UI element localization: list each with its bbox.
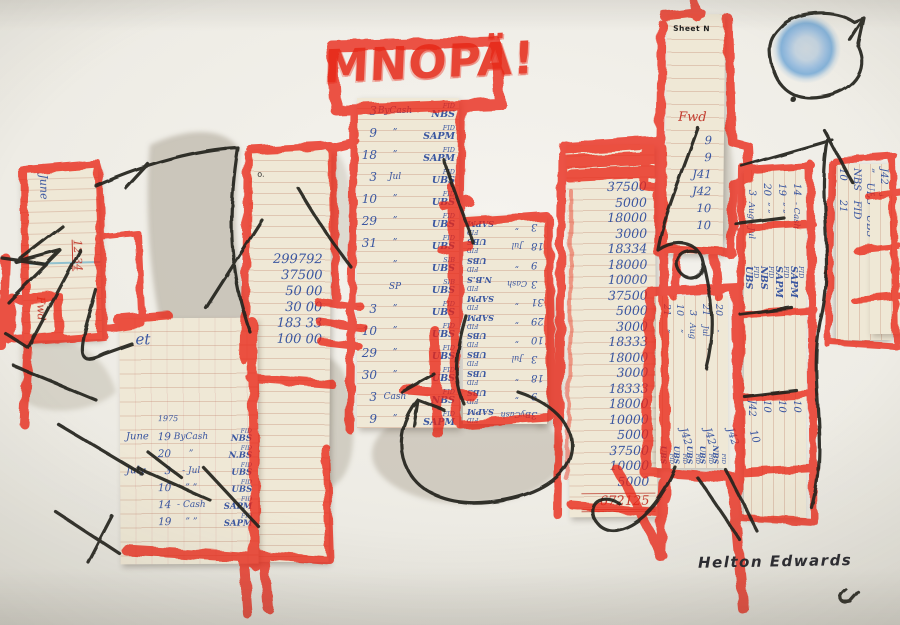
ledger-codes: FIDUBS — [744, 266, 760, 340]
ledger-org: UBS — [744, 266, 754, 289]
ledger-day: 9 — [531, 390, 547, 401]
ledger-codes: FIDN.BS — [229, 446, 257, 461]
ledger-label: Jul — [503, 241, 531, 250]
tower-value: 10 — [665, 200, 711, 217]
bottom-sheet-entries: June 19 ByCash FIDNBS 20 ” FIDN.BS July … — [126, 428, 257, 531]
amount-value: 18334 — [567, 241, 655, 257]
ledger-row: 3 ByCash FIDSAPM — [463, 405, 547, 424]
ledger-codes: FIDNBS — [231, 429, 256, 444]
printed-corner-mark: o. — [257, 170, 264, 179]
ledger-label: ” — [503, 316, 531, 325]
ledger-org: UBS — [432, 352, 455, 362]
ledger-row: 29 ” FIDSAPM — [463, 311, 547, 330]
ledger-org: NBS — [231, 435, 252, 444]
ledger-row: July 3 - Jul FIDUBS — [126, 462, 256, 480]
amount-value: 18000 — [569, 396, 657, 412]
ledger-day: 20 — [713, 296, 724, 316]
ledger-row: 10 ” FIDUBS — [357, 188, 459, 210]
wash-strip-shadow — [329, 150, 353, 262]
ledger-row: 3 ” FIDSAPM — [463, 217, 547, 236]
ledger-day: 20 — [156, 448, 171, 460]
inverted-entries: 3 ByCash FIDSAPM 9 ” FIDUBS 18 ” FIDUBS — [463, 216, 547, 424]
ledger-tag: FID — [467, 340, 478, 346]
ledger-day: 19 — [156, 516, 171, 528]
ink-sail-strokes — [96, 148, 250, 332]
amount-value: 5000 — [568, 303, 656, 319]
ledger-label: Cash — [377, 392, 413, 402]
ledger-org: UBS — [432, 308, 455, 318]
ledger-codes: FIDSAPM — [463, 220, 494, 234]
ledger-org: UBS — [231, 469, 252, 478]
amount-value: 18333 — [568, 380, 656, 396]
amount-column: 2997923750050 0030 00183 33100 00 — [248, 252, 331, 349]
amount-value: 183 33 — [248, 316, 330, 333]
ledger-row: 3 Cash FIDN.B.S — [463, 274, 547, 293]
ledger-day: 20 — [761, 170, 772, 196]
amount-value: 100 00 — [248, 332, 330, 349]
ledger-org: SAPM — [423, 418, 455, 428]
sheet-header-label: Sheet N — [673, 24, 710, 33]
ledger-codes: FIDN.B.S — [463, 276, 492, 290]
ledger-org: UBS — [467, 370, 487, 378]
ledger-label: Jul — [503, 354, 531, 363]
ledger-codes: FIDUBS — [432, 169, 459, 185]
watercolor-sun — [768, 10, 848, 94]
ledger-codes: FIDSAPM — [463, 408, 494, 422]
central-entries: 3 ByCash FIDNBS 9 ” FIDSAPM 18 ” FIDSAPM — [357, 98, 459, 428]
ledger-codes: FIDSAPM — [463, 314, 494, 328]
ledger-row: 18 ” FIDSAPM — [357, 144, 459, 166]
amount-value: 299792 — [249, 252, 331, 269]
ledger-amount: J42 — [746, 400, 757, 417]
ledger-codes: FIDUBS — [463, 238, 487, 252]
ledger-label: ” — [377, 304, 413, 314]
ledger-label: ” ” — [777, 196, 787, 266]
ledger-row: June 19 ByCash FIDNBS — [126, 428, 256, 446]
ledger-row: 18 Jul FIDUBS — [463, 236, 547, 255]
ledger-org: UBS — [432, 220, 455, 230]
ledger-row: 9 ” FIDUBS — [463, 255, 547, 274]
ledger-codes: FIDSAPM — [224, 497, 257, 512]
ledger-codes: FIDUBS — [463, 389, 487, 403]
ledger-day: 14 — [791, 170, 802, 196]
ledger-org: SAPM — [423, 132, 455, 142]
ledger-day: 30 — [357, 368, 377, 382]
ledger-day: 29 — [357, 346, 377, 360]
ledger-row: 3 Jul FIDUBS — [357, 166, 459, 188]
ink-sun-dot — [790, 96, 796, 102]
ledger-row: 19 ” ” FIDSAPM 10 — [774, 170, 789, 518]
printed-blue-rule — [22, 261, 100, 265]
ledger-label: ByCash — [171, 431, 211, 441]
ledger-codes: FIDUBS — [432, 213, 459, 229]
ledger-label: Jul — [701, 316, 710, 346]
ledger-strip-central: 3 ByCash FIDNBS 9 ” FIDSAPM 18 ” FIDSAPM — [357, 98, 459, 428]
total-amount: 672125 — [581, 493, 655, 513]
ledger-label: ” — [503, 373, 531, 382]
right-ledger-entries: 14 - Cash FIDSAPM 10 19 ” ” FIDSAPM 10 2… — [744, 170, 806, 518]
ledger-org: NBS — [431, 110, 455, 120]
ledger-row: 3 ByCash FIDNBS — [357, 100, 459, 122]
ledger-row: 9 ” FIDSAPM — [357, 122, 459, 144]
tower-value: 9 — [666, 149, 712, 166]
amount-value: 37500 — [568, 287, 656, 303]
ledger-day: 3 — [531, 409, 547, 420]
ledger-label: ” — [503, 260, 531, 269]
ledger-codes: FIDUBS — [463, 370, 487, 384]
ledger-label: ” — [377, 326, 413, 336]
ledger-codes: FIDUBS — [463, 332, 487, 346]
amount-value: 10000 — [569, 458, 657, 474]
ledger-strip-numbers: o. 2997923750050 0030 00183 33100 00 — [247, 150, 332, 563]
ledger-row: 10 ” FIDUBS — [463, 330, 547, 349]
ledger-label: - Cash — [171, 499, 211, 509]
ledger-row: 14 - Cash FIDSAPM — [126, 496, 256, 514]
amount-value: 3000 — [568, 318, 656, 334]
left-strip-month: June — [37, 174, 51, 199]
ledger-label: Aug — [688, 316, 697, 346]
left-strip-foot-note: Fwd — [34, 296, 48, 320]
ledger-codes: FIDSAPM — [463, 295, 494, 309]
ledger-label: Aug - Jul — [747, 196, 757, 266]
ledger-amount: 10 — [776, 400, 787, 413]
wash-left-bottom — [20, 341, 116, 411]
ledger-day: 14 — [156, 499, 171, 511]
amount-value: 10000 — [569, 411, 657, 427]
ledger-codes: FIDUBS — [231, 480, 256, 495]
ledger-day: 10 — [531, 334, 547, 345]
ledger-codes: FIDUBS — [231, 463, 256, 478]
ledger-codes: SIBUBS — [432, 279, 459, 295]
ledger-row: 3 Cash FIDNBS — [357, 386, 459, 408]
ledger-label: ” — [377, 414, 413, 424]
ledger-codes: FIDSAPM — [423, 147, 459, 163]
ledger-codes: FIDSAPM — [774, 266, 790, 340]
ledger-strip-left: June 12 34 Fwd — [20, 167, 102, 341]
ledger-label: ” — [503, 297, 531, 306]
ledger-day: 3 — [357, 390, 377, 404]
ledger-tag: FID — [467, 359, 478, 365]
ledger-codes: SIBUBS — [432, 257, 459, 273]
ledger-day: 19 — [156, 431, 171, 443]
ledger-label: ” — [377, 194, 413, 204]
amount-value: 50 00 — [248, 284, 330, 301]
ledger-codes: FIDSAPM — [224, 514, 257, 529]
ledger-org: UBS — [432, 176, 455, 186]
ledger-day: 21 — [700, 296, 711, 316]
ledger-day: 18 — [531, 372, 547, 383]
amount-value: 30 00 — [248, 300, 330, 317]
amount-value: 18000 — [567, 210, 655, 226]
ledger-org: UBS — [467, 389, 487, 397]
ledger-day: 3 — [687, 296, 698, 316]
ledger-strip-edge — [870, 196, 900, 334]
ledger-org: SAPM — [467, 295, 494, 303]
amount-value: 37500 — [249, 268, 331, 285]
ledger-day: 10 — [156, 482, 171, 494]
ledger-label: ” ” — [171, 516, 211, 526]
ledger-label: ” — [377, 128, 413, 138]
ledger-label: ” — [377, 238, 413, 248]
ledger-label: ” — [675, 316, 684, 346]
tower-red-note: Fwd — [678, 110, 707, 125]
artist-signature: Helton Edwards — [698, 550, 898, 571]
ledger-line: NBS FID — [850, 168, 864, 340]
ledger-codes: FIDUBS — [432, 345, 459, 361]
ledger-day: 3 — [746, 170, 757, 196]
ledger-codes: FIDNBS — [431, 389, 459, 405]
crayon-box-small — [98, 234, 142, 330]
ledger-row: 10 ” FIDUBS — [357, 320, 459, 342]
ledger-org: UBS — [467, 351, 487, 359]
ledger-label: ” — [377, 260, 413, 270]
ledger-org: SAPM — [467, 408, 494, 416]
ledger-codes: FIDSAPM — [789, 266, 805, 340]
ledger-day: 10 — [357, 324, 377, 338]
amount-value: 5000 — [569, 473, 657, 489]
ledger-label: ByCash — [377, 106, 413, 116]
ledger-label: Jul — [377, 172, 413, 182]
ledger-codes: FIDUBS — [432, 235, 459, 251]
ledger-row: 14 - Cash FIDSAPM 10 — [789, 170, 804, 518]
ledger-day: 3 — [357, 170, 377, 184]
ledger-day: 31 — [531, 296, 547, 307]
ledger-label: ” — [503, 335, 531, 344]
ledger-org: UBS — [467, 332, 487, 340]
ledger-label: ” — [377, 348, 413, 358]
ledger-day: 18 — [357, 148, 377, 162]
ledger-codes: FIDUBS — [432, 301, 459, 317]
ledger-month: June — [126, 431, 156, 442]
ledger-row: SP SIBUBS — [357, 276, 459, 298]
tower-values: 99J41J421010 — [665, 132, 712, 234]
ledger-label: Cash — [503, 279, 531, 288]
ledger-codes: FIDUBS — [463, 351, 487, 365]
ledger-strip-inverted: 3 ByCash FIDSAPM 9 ” FIDUBS 18 ” FIDUBS — [463, 216, 547, 424]
ledger-day: 19 — [776, 170, 787, 196]
ledger-day: 3 — [357, 104, 377, 118]
artwork-canvas: June 12 34 Fwd o. 2997923750050 0030 001… — [0, 0, 900, 625]
ledger-org: UBS — [432, 374, 455, 384]
ledger-day: 3 — [531, 353, 547, 364]
ledger-row: 19 ” ” FIDSAPM — [126, 513, 256, 531]
tower-value: J41 — [665, 166, 711, 183]
left-strip-amount: 12 34 — [71, 239, 85, 271]
ledger-row: 10 ” ” FIDUBS — [126, 479, 256, 497]
ledger-day: 21 — [661, 296, 672, 316]
ledger-day: 3 — [156, 465, 171, 477]
ledger-label: ” — [503, 222, 531, 231]
ledger-row: 9 ” FIDUBS — [463, 386, 547, 405]
ledger-row: 3 ” FIDUBS — [357, 298, 459, 320]
ledger-line: 10 21 — [836, 168, 850, 340]
ledger-label: ” — [377, 150, 413, 160]
ledger-org: UBS — [467, 257, 487, 265]
sheet-note: et — [135, 330, 150, 348]
ledger-codes: FIDNBS — [759, 266, 775, 340]
ledger-org: NBS — [431, 396, 455, 406]
ledger-label: ” — [377, 370, 413, 380]
ledger-row: 9 ” FIDSAPM — [357, 408, 459, 430]
tower-value: 9 — [666, 132, 712, 149]
ledger-row: 30 ” FIDUBS — [357, 364, 459, 386]
ledger-row: ” SIBUBS — [357, 254, 459, 276]
ledger-org: SAPM — [224, 520, 253, 529]
ledger-row: 18 ” FIDUBS — [463, 368, 547, 387]
amount-value: 3000 — [567, 225, 655, 241]
ledger-day: 9 — [357, 126, 377, 140]
amount-value: 5000 — [567, 194, 655, 210]
amount-value: 18333 — [568, 334, 656, 350]
ledger-org: UBS — [467, 238, 487, 246]
ledger-row: 29 ” FIDUBS — [357, 342, 459, 364]
sheet-year: 1975 — [158, 414, 178, 423]
ledger-day: 10 — [357, 192, 377, 206]
ledger-label: ” — [662, 316, 671, 346]
ledger-row: 20 ” FIDN.BS — [126, 445, 256, 463]
title-scrawl: MNOPÄ! — [323, 32, 515, 93]
ledger-row: 29 ” FIDUBS — [357, 210, 459, 232]
ledger-codes: FIDNBS — [431, 103, 459, 119]
ledger-org: SAPM — [224, 503, 253, 512]
ledger-label: - Cash — [792, 196, 802, 266]
ledger-row: 20 ” ” FIDNBS 10 — [759, 170, 774, 518]
amount-value: 3000 — [568, 365, 656, 381]
ledger-org: UBS — [432, 264, 455, 274]
ledger-org: UBS — [432, 242, 455, 252]
ledger-day: 9 — [531, 259, 547, 270]
ledger-row: 31 ” FIDUBS — [357, 232, 459, 254]
ledger-label: - Jul — [171, 465, 211, 475]
ink-stroke-left-low — [14, 366, 96, 400]
ledger-day: 9 — [357, 412, 377, 426]
ledger-sheet-bottom: et 1975 June 19 ByCash FIDNBS 20 ” FIDN.… — [119, 318, 258, 565]
ledger-strip-tower: Sheet N Fwd 99J41J421010 — [665, 14, 726, 255]
ledger-day: 3 — [531, 278, 547, 289]
ledger-codes: FIDSAPM — [423, 125, 459, 141]
ledger-strip-tall-numbers: 3750050001800030001833418000100003750050… — [566, 145, 657, 518]
amount-value: 18000 — [567, 256, 655, 272]
ledger-month: July — [126, 465, 156, 476]
ledger-day: 29 — [357, 214, 377, 228]
ledger-day: 3 — [531, 221, 547, 232]
ledger-label: ” — [171, 448, 211, 458]
ledger-label: SP — [377, 282, 413, 292]
ledger-label: ByCash — [503, 410, 531, 419]
ledger-strip-right-sideways: 14 - Cash FIDSAPM 10 19 ” ” FIDSAPM 10 2… — [744, 170, 806, 518]
ledger-amount: 10 — [791, 400, 802, 413]
ledger-label: ” ” — [171, 482, 211, 492]
ledger-org: UBS — [432, 198, 455, 208]
ledger-org: SAPM — [423, 154, 455, 164]
ink-ticks-bottom-corner — [56, 512, 120, 562]
ledger-day: 31 — [357, 236, 377, 250]
amount-value: 37500 — [567, 179, 655, 195]
ledger-org: UBS — [231, 486, 252, 495]
ledger-org: SAPM — [467, 314, 494, 322]
ledger-org: N.B.S — [467, 276, 492, 284]
ledger-tag: FID — [467, 246, 478, 252]
ledger-day: 3 — [357, 302, 377, 316]
ledger-row: 3 Aug - Jul FIDUBS J42 — [744, 170, 759, 518]
ledger-row: 3 Jul FIDUBS — [463, 349, 547, 368]
ledger-label: ” — [377, 216, 413, 226]
ledger-codes: FIDUBS — [432, 191, 459, 207]
ledger-codes: FIDUBS — [463, 257, 487, 271]
ledger-amount: 10 — [761, 400, 772, 413]
ledger-label: ” — [503, 391, 531, 400]
ledger-row: 31 ” FIDSAPM — [463, 292, 547, 311]
amount-value: 18000 — [568, 349, 656, 365]
ledger-codes: FIDUBS — [432, 367, 459, 383]
ink-signature-flourish — [840, 590, 858, 602]
aug-foot-refs: J42J42J4210 — [654, 414, 734, 474]
ledger-day: 10 — [674, 296, 685, 316]
ledger-day: 18 — [531, 240, 547, 251]
ledger-label: - — [714, 316, 723, 346]
ledger-label: ” ” — [762, 196, 772, 266]
ledger-tag: FID — [467, 265, 478, 271]
tower-value: J42 — [665, 183, 711, 200]
ledger-org: UBS — [432, 286, 455, 296]
ledger-day: 29 — [531, 315, 547, 326]
amount-value: 10000 — [567, 272, 655, 288]
ledger-codes: FIDSAPM — [423, 411, 459, 427]
tower-value: 10 — [665, 217, 711, 234]
ledger-org: SAPM — [467, 220, 494, 228]
ledger-codes: FIDUBS — [432, 323, 459, 339]
ledger-org: N.BS — [229, 452, 253, 461]
ledger-org: UBS — [432, 330, 455, 340]
